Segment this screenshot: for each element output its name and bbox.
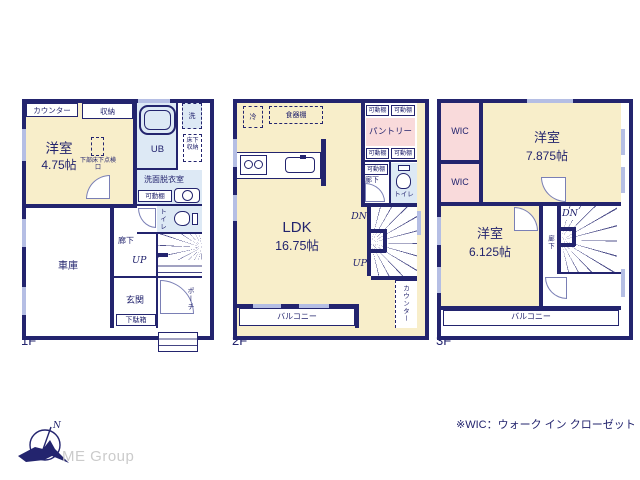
brand-logo-text: ME Group [62, 448, 134, 465]
window-marker [138, 99, 170, 103]
wall-segment [441, 160, 479, 164]
stove-icon [240, 155, 267, 175]
label-floor-hatch: 下部床下点検口 [80, 158, 116, 172]
room-name-youshitsu-1f: 洋室 [28, 141, 90, 157]
label-shelf-2f: 可動棚 [366, 105, 389, 116]
room-name-youshitsu-3f-large: 洋室 [507, 131, 587, 146]
label-toilet-1f: トイレ [158, 208, 165, 231]
wall-segment [355, 304, 359, 328]
stair-stub-2f [383, 229, 387, 252]
room-wic-1: WIC [441, 103, 479, 160]
window-marker [437, 217, 441, 245]
room-wic-2: WIC [441, 164, 479, 202]
wall-segment [26, 204, 137, 208]
stair-stub-3f [572, 227, 576, 246]
window-marker [22, 287, 26, 315]
room-size-ldk: 16.75帖 [257, 239, 337, 253]
label-hall-1f: 廊下 [118, 236, 134, 245]
floor-hatch-box [91, 137, 104, 156]
plan-2f: 可動棚 可動棚 パントリー 可動棚 可動棚 可動棚 廊下 トイレ 冷 食器棚 L… [233, 99, 429, 340]
label-dn-3f: DN [561, 209, 579, 220]
door-arc-balcony-3f [545, 277, 567, 299]
toilet-icon-2f [395, 165, 412, 189]
window-marker [621, 129, 625, 155]
wall-segment [321, 139, 326, 186]
bathtub-icon [139, 105, 176, 135]
wall-segment [539, 206, 543, 306]
label-shelf-2f: 可動棚 [391, 105, 415, 116]
window-marker [299, 304, 329, 308]
toilet-icon-1f [174, 210, 198, 227]
window-marker [621, 167, 625, 193]
wall-segment [114, 276, 202, 278]
wall-segment [137, 204, 202, 206]
kitchen-sink-icon [285, 157, 315, 173]
floor-label-2f: 2F [232, 334, 247, 349]
label-shelf-2f: 可動棚 [364, 164, 388, 175]
wall-segment [367, 207, 371, 276]
door-arc-toilet-1f [138, 208, 156, 228]
label-porch: ポーチ [186, 287, 194, 311]
wall-segment [479, 103, 483, 206]
sink-icon [174, 188, 200, 203]
plan-1f: カウンター 収納 洋室 4.75帖 下部床下点検口 UB 洗 床下収納 洗面脱衣… [22, 99, 214, 340]
wall-segment [137, 232, 202, 234]
label-storage-1f: 収納 [82, 103, 133, 119]
label-counter-1f: カウンター [26, 103, 78, 117]
porch-steps [158, 332, 198, 352]
fridge-box: 冷 [243, 106, 263, 128]
wall-segment [557, 272, 621, 274]
floor-label-3f: 3F [436, 334, 451, 349]
stair-stub-1f [158, 253, 168, 257]
wall-segment [110, 208, 114, 328]
wall-segment [156, 234, 158, 328]
window-marker [253, 304, 281, 308]
wall-segment [389, 162, 391, 203]
floor-plan-canvas: カウンター 収納 洋室 4.75帖 下部床下点検口 UB 洗 床下収納 洗面脱衣… [0, 0, 640, 480]
stairs-1f-lower [158, 260, 202, 276]
label-pantry: パントリー [366, 118, 415, 146]
window-marker [233, 195, 237, 221]
room-size-youshitsu-3f-small: 6.125帖 [450, 246, 530, 260]
wall-segment [176, 103, 178, 170]
window-marker [621, 269, 625, 297]
cupboard-box: 食器棚 [269, 106, 323, 124]
label-dn-2f: DN [345, 212, 367, 223]
label-shelf-2f: 可動棚 [366, 148, 389, 159]
label-shelf-2f: 可動棚 [391, 148, 415, 159]
laundry-box: 洗 [182, 103, 202, 129]
label-ub: UB [137, 145, 178, 156]
compass-north-label: N [52, 421, 62, 431]
window-marker [22, 219, 26, 247]
room-size-youshitsu-3f-large: 7.875帖 [507, 150, 587, 164]
wall-segment [557, 206, 561, 272]
wall-segment [133, 103, 137, 208]
label-washroom: 洗面脱衣室 [139, 175, 189, 184]
wall-segment [441, 202, 621, 206]
label-shoebox: 下駄箱 [116, 314, 156, 326]
window-marker [417, 211, 421, 235]
wall-segment [137, 168, 178, 170]
floor-label-1f: 1F [21, 334, 36, 349]
underfloor-storage-box: 床下収納 [183, 134, 202, 162]
label-shelf-1f: 可動棚 [138, 190, 172, 202]
label-entrance: 玄関 [116, 295, 154, 305]
label-balcony-2f: バルコニー [257, 312, 337, 321]
stairs-2f [371, 207, 417, 276]
wall-segment [361, 103, 365, 203]
wall-segment [371, 276, 417, 280]
label-balcony-3f: バルコニー [491, 312, 571, 321]
label-up-1f: UP [132, 256, 146, 267]
wic-note: ※WIC：ウォーク イン クローゼット [456, 416, 636, 432]
label-garage: 車庫 [36, 261, 100, 273]
label-counter-2f: カウンター [401, 285, 408, 323]
compass-icon: N [16, 418, 72, 474]
window-marker [233, 139, 237, 167]
window-marker [22, 129, 26, 161]
window-marker [527, 99, 573, 103]
room-name-ldk: LDK [257, 219, 337, 236]
label-hall-3f: 廊下 [546, 235, 553, 250]
window-marker [437, 267, 441, 293]
plan-3f: WIC WIC 洋室 7.875帖 洋室 6.125帖 DN 廊下 バルコニー [437, 99, 633, 340]
label-toilet-2f: トイレ [391, 191, 417, 198]
wall-segment [441, 306, 621, 310]
label-up-2f: UP [345, 259, 367, 270]
